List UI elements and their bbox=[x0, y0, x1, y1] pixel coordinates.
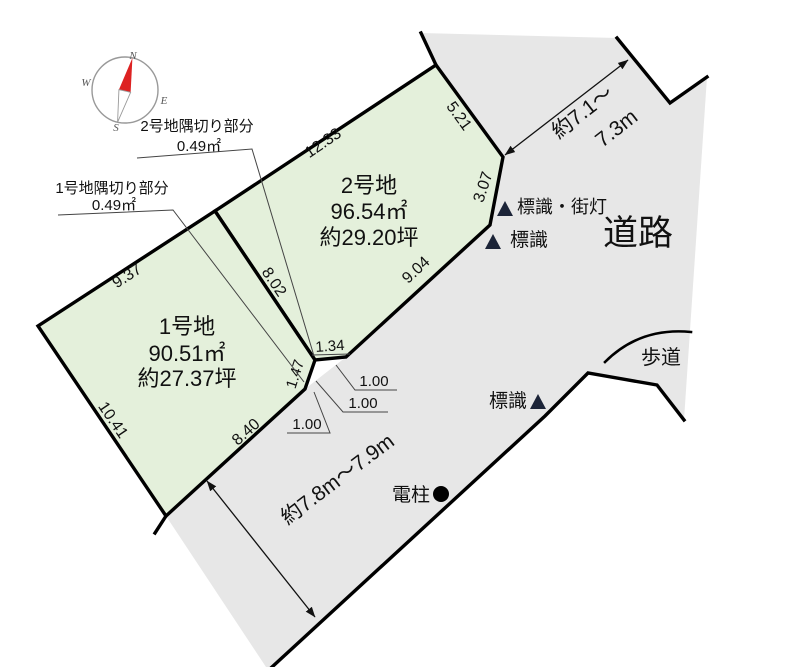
compass-n: N bbox=[128, 50, 137, 62]
compass-needle-south bbox=[112, 90, 131, 124]
dim-1-00-a: 1.00 bbox=[359, 373, 388, 390]
dim-1-00-b: 1.00 bbox=[348, 395, 377, 412]
sign-upper-label: 標識 bbox=[510, 229, 548, 251]
compass-s: S bbox=[113, 122, 119, 134]
lot2-area-m2: 96.54㎡ bbox=[330, 199, 407, 224]
lot2-area-tsubo: 約29.20坪 bbox=[319, 225, 418, 250]
utility-pole-dot-icon bbox=[433, 486, 449, 502]
lot1-area-tsubo: 約27.37坪 bbox=[137, 366, 236, 391]
boundary-extension bbox=[155, 516, 166, 533]
dim-1-00-c: 1.00 bbox=[292, 416, 321, 433]
cut2-label-line1: 2号地隅切り部分 bbox=[140, 118, 253, 135]
lot1-area-m2: 90.51㎡ bbox=[148, 341, 225, 366]
sidewalk-label: 歩道 bbox=[641, 346, 681, 369]
compass-w: W bbox=[81, 77, 91, 89]
compass-needle bbox=[112, 56, 139, 123]
compass-e: E bbox=[160, 95, 168, 107]
road-label: 道路 bbox=[603, 214, 673, 253]
cut2-label-line2: 0.49㎡ bbox=[177, 138, 221, 155]
dim-1-34: 1.34 bbox=[315, 337, 345, 356]
sign-lower-label: 標識 bbox=[489, 390, 527, 412]
plot-diagram-canvas: 2号地 96.54㎡ 約29.20坪 1号地 90.51㎡ 約27.37坪 12… bbox=[0, 0, 800, 667]
cut1-label-line1: 1号地隅切り部分 bbox=[55, 180, 168, 197]
lot1-name: 1号地 bbox=[159, 314, 215, 339]
land-plot-diagram: 2号地 96.54㎡ 約29.20坪 1号地 90.51㎡ 約27.37坪 12… bbox=[0, 0, 800, 667]
sign-streetlight-label: 標識・街灯 bbox=[517, 197, 607, 217]
lot2-name: 2号地 bbox=[341, 173, 397, 198]
utility-pole-label: 電柱 bbox=[392, 484, 430, 506]
cut1-label-line2: 0.49㎡ bbox=[92, 197, 136, 214]
